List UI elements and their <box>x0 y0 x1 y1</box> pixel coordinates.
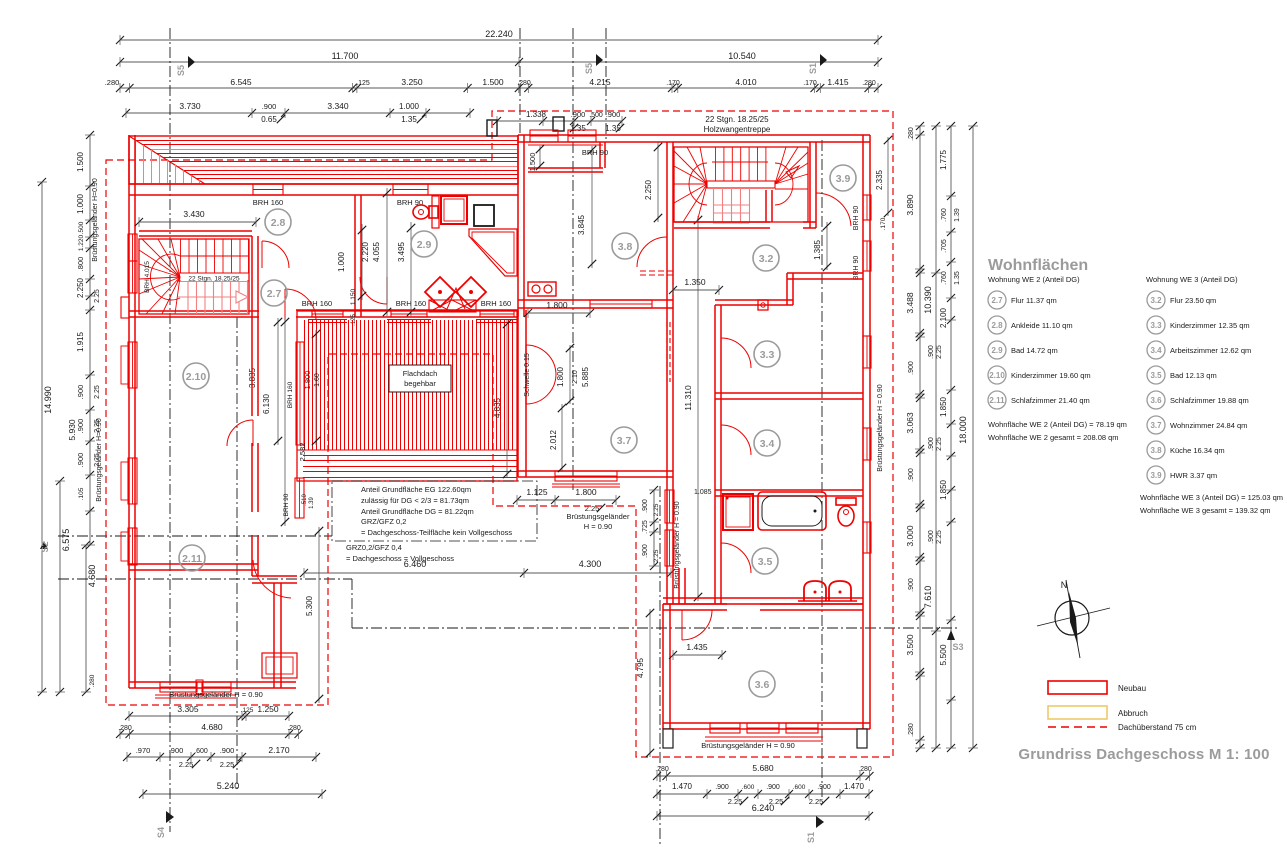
svg-text:1.60: 1.60 <box>314 373 321 387</box>
svg-text:.280: .280 <box>862 80 876 87</box>
svg-text:.500: .500 <box>589 112 603 119</box>
svg-text:3.7: 3.7 <box>1150 421 1162 430</box>
svg-text:BRH 160: BRH 160 <box>481 299 511 308</box>
svg-text:.900: .900 <box>928 437 935 451</box>
svg-text:BRH 4.015: BRH 4.015 <box>144 261 151 293</box>
svg-text:2.11: 2.11 <box>182 553 202 565</box>
svg-text:6.575: 6.575 <box>61 529 71 552</box>
svg-text:.705: .705 <box>941 239 948 253</box>
svg-text:10.390: 10.390 <box>923 286 933 314</box>
svg-text:1.39: 1.39 <box>309 497 315 509</box>
svg-text:S5: S5 <box>176 65 186 76</box>
svg-text:.510: .510 <box>302 494 308 506</box>
svg-text:1.470: 1.470 <box>844 782 865 791</box>
svg-text:3.430: 3.430 <box>183 209 205 219</box>
svg-text:Bad 14.72 qm: Bad 14.72 qm <box>1011 346 1058 355</box>
svg-text:Brüstungsgeländer H=0.90: Brüstungsgeländer H=0.90 <box>92 178 99 262</box>
svg-text:3.6: 3.6 <box>1150 396 1162 405</box>
svg-text:1.800: 1.800 <box>303 371 312 390</box>
svg-text:3.063: 3.063 <box>905 412 915 434</box>
svg-text:3.890: 3.890 <box>905 194 915 216</box>
svg-text:22.240: 22.240 <box>485 29 513 39</box>
svg-text:2.250: 2.250 <box>644 179 653 200</box>
svg-text:.280: .280 <box>655 766 669 773</box>
svg-text:2.335: 2.335 <box>875 169 884 190</box>
svg-text:3.340: 3.340 <box>327 101 349 111</box>
svg-text:1.220: 1.220 <box>78 234 85 251</box>
svg-text:1.350: 1.350 <box>684 277 706 287</box>
svg-text:Wohnfläche WE 2 gesamt = 208.: Wohnfläche WE 2 gesamt = 208.08 qm <box>988 433 1119 442</box>
svg-text:2.012: 2.012 <box>549 429 558 450</box>
svg-text:.900: .900 <box>928 345 935 359</box>
svg-text:.800: .800 <box>76 257 85 272</box>
svg-text:BRH 90: BRH 90 <box>283 493 290 516</box>
svg-text:Schlafzimmer 21.40 qm: Schlafzimmer 21.40 qm <box>1011 396 1090 405</box>
svg-text:.125: .125 <box>356 80 370 87</box>
svg-text:22 Stgn. 18.25/25: 22 Stgn. 18.25/25 <box>188 276 240 283</box>
svg-text:4.055: 4.055 <box>372 241 381 262</box>
svg-text:1.850: 1.850 <box>939 396 948 417</box>
svg-text:1.385: 1.385 <box>813 239 822 260</box>
svg-text:BRH 160: BRH 160 <box>253 198 283 207</box>
svg-text:.900: .900 <box>169 746 184 755</box>
svg-text:14.990: 14.990 <box>43 386 53 414</box>
svg-text:Flur 23.50 qm: Flur 23.50 qm <box>1170 296 1216 305</box>
svg-text:10.540: 10.540 <box>728 51 756 61</box>
svg-text:2.25: 2.25 <box>653 549 660 562</box>
svg-text:.900: .900 <box>908 578 915 592</box>
svg-text:S2: S2 <box>40 541 50 552</box>
svg-text:3.3: 3.3 <box>760 349 775 361</box>
svg-text:1.435: 1.435 <box>686 642 708 652</box>
svg-text:Anteil Grundfläche EG 122.60qm: Anteil Grundfläche EG 122.60qm <box>361 485 471 494</box>
svg-text:.600: .600 <box>742 784 755 791</box>
svg-text:.900: .900 <box>76 385 85 400</box>
svg-text:2.25: 2.25 <box>94 289 101 303</box>
svg-text:1.000: 1.000 <box>337 251 346 272</box>
svg-text:1.470: 1.470 <box>672 782 693 791</box>
svg-text:1.850: 1.850 <box>939 479 948 500</box>
svg-text:begehbar: begehbar <box>404 379 436 388</box>
svg-text:2.8: 2.8 <box>991 321 1003 330</box>
svg-text:BRH 90: BRH 90 <box>853 256 860 281</box>
svg-text:.105: .105 <box>78 487 85 500</box>
svg-text:4.215: 4.215 <box>589 77 611 87</box>
svg-text:Bad 12.13 qm: Bad 12.13 qm <box>1170 371 1217 380</box>
svg-text:Wohnfläche WE 3 gesamt = 139.: Wohnfläche WE 3 gesamt = 139.32 qm <box>1140 506 1271 515</box>
svg-text:3.7: 3.7 <box>617 435 632 447</box>
svg-text:5.300: 5.300 <box>305 595 314 616</box>
svg-text:Wohnfläche WE 2 (Anteil DG) =: Wohnfläche WE 2 (Anteil DG) = 78.19 qm <box>988 420 1127 429</box>
svg-text:zulässig für DG < 2/3 = 81.7: zulässig für DG < 2/3 = 81.73qm <box>361 496 469 505</box>
svg-text:3.6: 3.6 <box>755 679 770 691</box>
svg-text:1.500: 1.500 <box>482 77 504 87</box>
svg-text:3.9: 3.9 <box>1150 471 1162 480</box>
svg-text:3.5: 3.5 <box>758 556 773 568</box>
svg-text:.970: .970 <box>136 746 151 755</box>
svg-text:Küche 16.34 qm: Küche 16.34 qm <box>1170 446 1225 455</box>
svg-text:1.800: 1.800 <box>556 366 565 387</box>
svg-text:HWR 3.37 qm: HWR 3.37 qm <box>1170 471 1217 480</box>
svg-text:1.800: 1.800 <box>546 300 568 310</box>
svg-text:3.488: 3.488 <box>905 292 915 314</box>
svg-text:Brüstungsgeländer: Brüstungsgeländer <box>567 512 630 521</box>
svg-text:3.4: 3.4 <box>1150 346 1162 355</box>
svg-text:18.000: 18.000 <box>958 416 968 444</box>
svg-text:3.5: 3.5 <box>1150 371 1162 380</box>
svg-text:3.845: 3.845 <box>577 214 586 235</box>
svg-text:Brüstungsgeländer H = 0.90: Brüstungsgeländer H = 0.90 <box>701 741 795 750</box>
svg-text:4.300: 4.300 <box>579 559 602 569</box>
svg-text:Dachüberstand 75 cm: Dachüberstand 75 cm <box>1118 723 1197 732</box>
svg-text:.170: .170 <box>803 80 817 87</box>
svg-text:GRZ0,2/GFZ 0,4: GRZ0,2/GFZ 0,4 <box>346 543 402 552</box>
svg-text:Holzwangentreppe: Holzwangentreppe <box>704 125 771 134</box>
svg-text:S4: S4 <box>156 827 166 838</box>
svg-text:2.9: 2.9 <box>417 239 432 251</box>
svg-text:Schwelle 0.15: Schwelle 0.15 <box>524 353 531 397</box>
svg-text:.900: .900 <box>908 468 915 482</box>
svg-text:.280: .280 <box>517 80 531 87</box>
svg-text:3.8: 3.8 <box>618 241 633 253</box>
svg-text:BRH 160: BRH 160 <box>287 381 294 408</box>
svg-text:1.085: 1.085 <box>694 489 712 496</box>
svg-text:2.25: 2.25 <box>220 760 235 769</box>
svg-text:22 Stgn. 18.25/25: 22 Stgn. 18.25/25 <box>705 115 769 124</box>
svg-text:Brüstungsgeländer H=0.90: Brüstungsgeländer H=0.90 <box>96 418 103 502</box>
svg-text:BRH 160: BRH 160 <box>302 299 332 308</box>
svg-text:.900: .900 <box>817 784 831 791</box>
svg-text:Neubau: Neubau <box>1118 684 1146 693</box>
svg-text:Flur 11.37 qm: Flur 11.37 qm <box>1011 296 1057 305</box>
svg-text:.760: .760 <box>941 271 948 285</box>
svg-text:= Dachgeschoss = Vollgescho: = Dachgeschoss = Vollgeschoss <box>346 554 454 563</box>
svg-text:4.680: 4.680 <box>87 565 97 588</box>
svg-text:7.610: 7.610 <box>923 586 933 609</box>
svg-text:2.170: 2.170 <box>268 745 290 755</box>
svg-text:.280: .280 <box>908 723 915 737</box>
svg-text:5.500: 5.500 <box>938 644 948 666</box>
svg-text:.600: .600 <box>194 748 208 755</box>
svg-text:.900: .900 <box>76 453 85 468</box>
svg-text:0.65: 0.65 <box>261 115 277 124</box>
svg-text:4.010: 4.010 <box>735 77 757 87</box>
svg-text:1.415: 1.415 <box>827 77 849 87</box>
svg-text:1.39: 1.39 <box>954 208 961 222</box>
svg-text:2.7: 2.7 <box>267 288 282 300</box>
svg-text:Abbruch: Abbruch <box>1118 709 1148 718</box>
svg-text:2.220: 2.220 <box>361 241 370 262</box>
svg-text:H = 0.90: H = 0.90 <box>584 522 613 531</box>
svg-text:11.700: 11.700 <box>332 51 359 61</box>
svg-text:1.000: 1.000 <box>399 102 420 111</box>
svg-text:3.000: 3.000 <box>905 525 915 547</box>
svg-text:4.835: 4.835 <box>493 397 502 418</box>
svg-text:2.25: 2.25 <box>936 437 943 451</box>
svg-text:.900: .900 <box>766 784 780 791</box>
svg-text:.280: .280 <box>908 127 915 141</box>
svg-text:Ankleide 11.10 qm: Ankleide 11.10 qm <box>1011 321 1073 330</box>
svg-text:3.500: 3.500 <box>905 634 915 656</box>
svg-text:4.680: 4.680 <box>201 722 223 732</box>
svg-text:Wohnung WE 3 (Anteil DG): Wohnung WE 3 (Anteil DG) <box>1146 275 1238 284</box>
svg-text:.900: .900 <box>76 419 85 434</box>
svg-text:Wohnzimmer 24.84 qm: Wohnzimmer 24.84 qm <box>1170 421 1247 430</box>
svg-text:2.8: 2.8 <box>271 217 286 229</box>
svg-text:Kinderzimmer 19.60 qm: Kinderzimmer 19.60 qm <box>1011 371 1091 380</box>
svg-text:1.150: 1.150 <box>350 288 357 305</box>
svg-text:2.100: 2.100 <box>939 307 948 328</box>
svg-text:.900: .900 <box>908 361 915 375</box>
svg-text:Brüstungsgeländer H = 0.90: Brüstungsgeländer H = 0.90 <box>169 690 263 699</box>
svg-text:6.240: 6.240 <box>752 803 775 813</box>
svg-text:2.11: 2.11 <box>989 396 1005 405</box>
svg-text:Grundriss Dachgeschoss M 1: 1: Grundriss Dachgeschoss M 1: 100 <box>1018 746 1269 763</box>
svg-text:3.250: 3.250 <box>401 77 423 87</box>
svg-text:3.2: 3.2 <box>759 253 774 265</box>
svg-text:5.930: 5.930 <box>67 419 77 441</box>
svg-text:.280: .280 <box>89 674 96 687</box>
svg-text:1.35: 1.35 <box>954 271 961 285</box>
svg-text:.500: .500 <box>78 221 85 234</box>
svg-text:S1: S1 <box>806 832 816 843</box>
svg-text:4.795: 4.795 <box>636 657 645 678</box>
svg-text:2.250: 2.250 <box>76 277 85 298</box>
svg-text:2.25: 2.25 <box>179 760 194 769</box>
svg-text:2.10: 2.10 <box>989 371 1005 380</box>
svg-text:3.495: 3.495 <box>397 241 406 262</box>
svg-text:.280: .280 <box>858 766 872 773</box>
svg-text:.170: .170 <box>880 217 887 230</box>
svg-text:1.500: 1.500 <box>76 151 85 172</box>
svg-text:3.8: 3.8 <box>1150 446 1162 455</box>
svg-text:3.9: 3.9 <box>836 173 851 185</box>
svg-text:2.10: 2.10 <box>186 371 207 383</box>
svg-text:Brüstungsgeländer H = 0.90: Brüstungsgeländer H = 0.90 <box>877 384 884 471</box>
svg-text:2.25: 2.25 <box>936 345 943 359</box>
svg-text:3.2: 3.2 <box>1150 296 1162 305</box>
svg-text:N: N <box>1061 580 1068 590</box>
svg-text:Anteil Grundfläche DG = 81.22q: Anteil Grundfläche DG = 81.22qm <box>361 507 474 516</box>
svg-text:.900: .900 <box>262 102 277 111</box>
svg-text:.760: .760 <box>941 208 948 222</box>
svg-text:2.25: 2.25 <box>94 385 101 399</box>
svg-text:.280: .280 <box>105 78 120 87</box>
svg-text:Wohnfläche WE 3 (Anteil DG) =: Wohnfläche WE 3 (Anteil DG) = 125.03 qm <box>1140 493 1283 502</box>
svg-text:.900: .900 <box>642 544 649 558</box>
svg-text:1.775: 1.775 <box>939 149 948 170</box>
svg-text:.725: .725 <box>642 520 649 534</box>
svg-text:Wohnflächen: Wohnflächen <box>988 257 1088 274</box>
svg-text:6.545: 6.545 <box>230 77 252 87</box>
svg-text:Arbeitszimmer 12.62 qm: Arbeitszimmer 12.62 qm <box>1170 346 1251 355</box>
svg-text:5.240: 5.240 <box>217 781 240 791</box>
svg-text:.900: .900 <box>715 784 729 791</box>
svg-text:.600: .600 <box>793 784 806 791</box>
svg-text:1.000: 1.000 <box>76 193 85 214</box>
svg-text:2.9: 2.9 <box>991 346 1003 355</box>
svg-text:.900: .900 <box>928 530 935 544</box>
svg-text:6.130: 6.130 <box>262 393 271 414</box>
svg-text:Schlafzimmer 19.88 qm: Schlafzimmer 19.88 qm <box>1170 396 1249 405</box>
svg-text:Wohnung WE 2 (Anteil DG): Wohnung WE 2 (Anteil DG) <box>988 275 1080 284</box>
svg-text:1.500: 1.500 <box>528 153 537 172</box>
svg-text:2.7: 2.7 <box>991 296 1003 305</box>
svg-text:.900: .900 <box>642 499 649 513</box>
svg-text:S3: S3 <box>952 642 963 652</box>
svg-text:S5: S5 <box>584 63 594 74</box>
svg-text:Brüstungsgeländer H = 0.90: Brüstungsgeländer H = 0.90 <box>674 501 681 588</box>
svg-text:2.25: 2.25 <box>936 530 943 544</box>
svg-text:.280: .280 <box>118 725 132 732</box>
svg-text:3.730: 3.730 <box>179 101 201 111</box>
svg-text:3.3: 3.3 <box>1150 321 1162 330</box>
svg-text:3.4: 3.4 <box>760 438 775 450</box>
svg-text:.125: .125 <box>241 707 254 714</box>
svg-text:GRZ/GFZ 0,2: GRZ/GFZ 0,2 <box>361 517 406 526</box>
svg-text:5.680: 5.680 <box>752 763 774 773</box>
svg-text:.280: .280 <box>287 725 301 732</box>
svg-text:1.915: 1.915 <box>76 331 85 352</box>
svg-text:2.10: 2.10 <box>572 370 579 384</box>
svg-text:S1: S1 <box>808 63 818 74</box>
svg-text:= Dachgeschoss-Teilfläche kei: = Dachgeschoss-Teilfläche kein Vollgesch… <box>361 528 512 537</box>
svg-text:1.35: 1.35 <box>401 115 417 124</box>
svg-text:Kinderzimmer 12.35 qm: Kinderzimmer 12.35 qm <box>1170 321 1250 330</box>
svg-text:11.310: 11.310 <box>683 385 693 411</box>
svg-text:.900: .900 <box>220 746 235 755</box>
svg-text:Flachdach: Flachdach <box>403 369 438 378</box>
svg-text:1.800: 1.800 <box>575 487 597 497</box>
svg-text:.170: .170 <box>666 80 680 87</box>
svg-text:BRH 90: BRH 90 <box>853 206 860 231</box>
svg-text:2.582: 2.582 <box>298 443 307 462</box>
svg-text:5.885: 5.885 <box>581 366 590 387</box>
svg-text:BRH 90: BRH 90 <box>582 148 608 157</box>
svg-text:2.25: 2.25 <box>653 503 660 516</box>
